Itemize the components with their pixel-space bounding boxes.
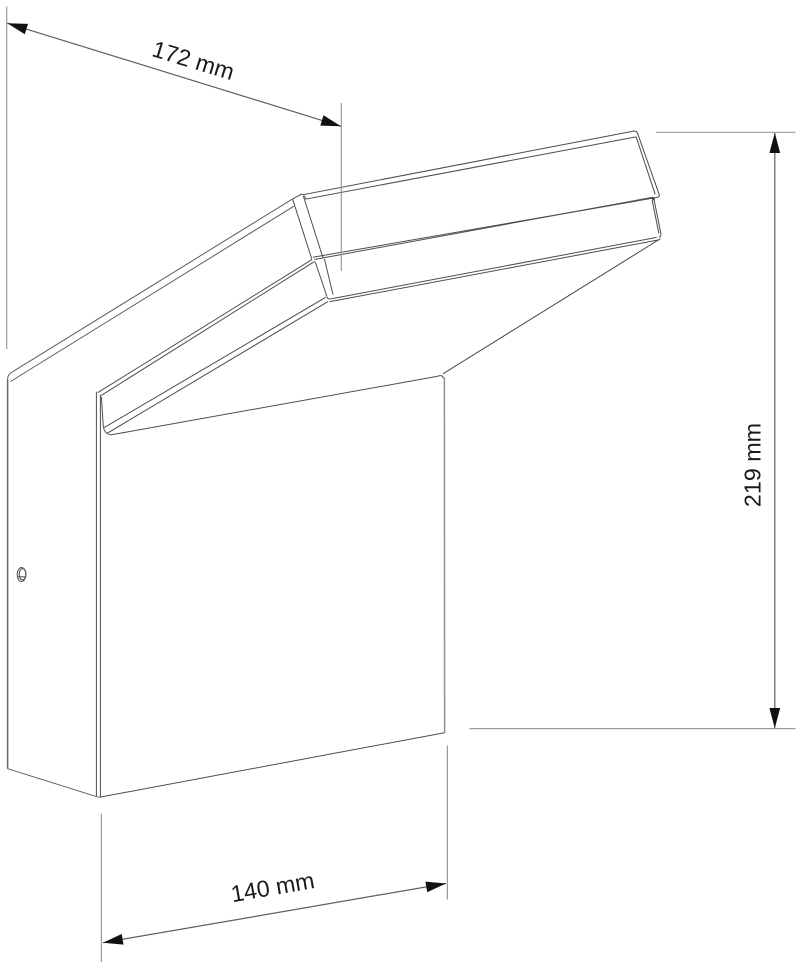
- svg-text:219 mm: 219 mm: [740, 423, 766, 507]
